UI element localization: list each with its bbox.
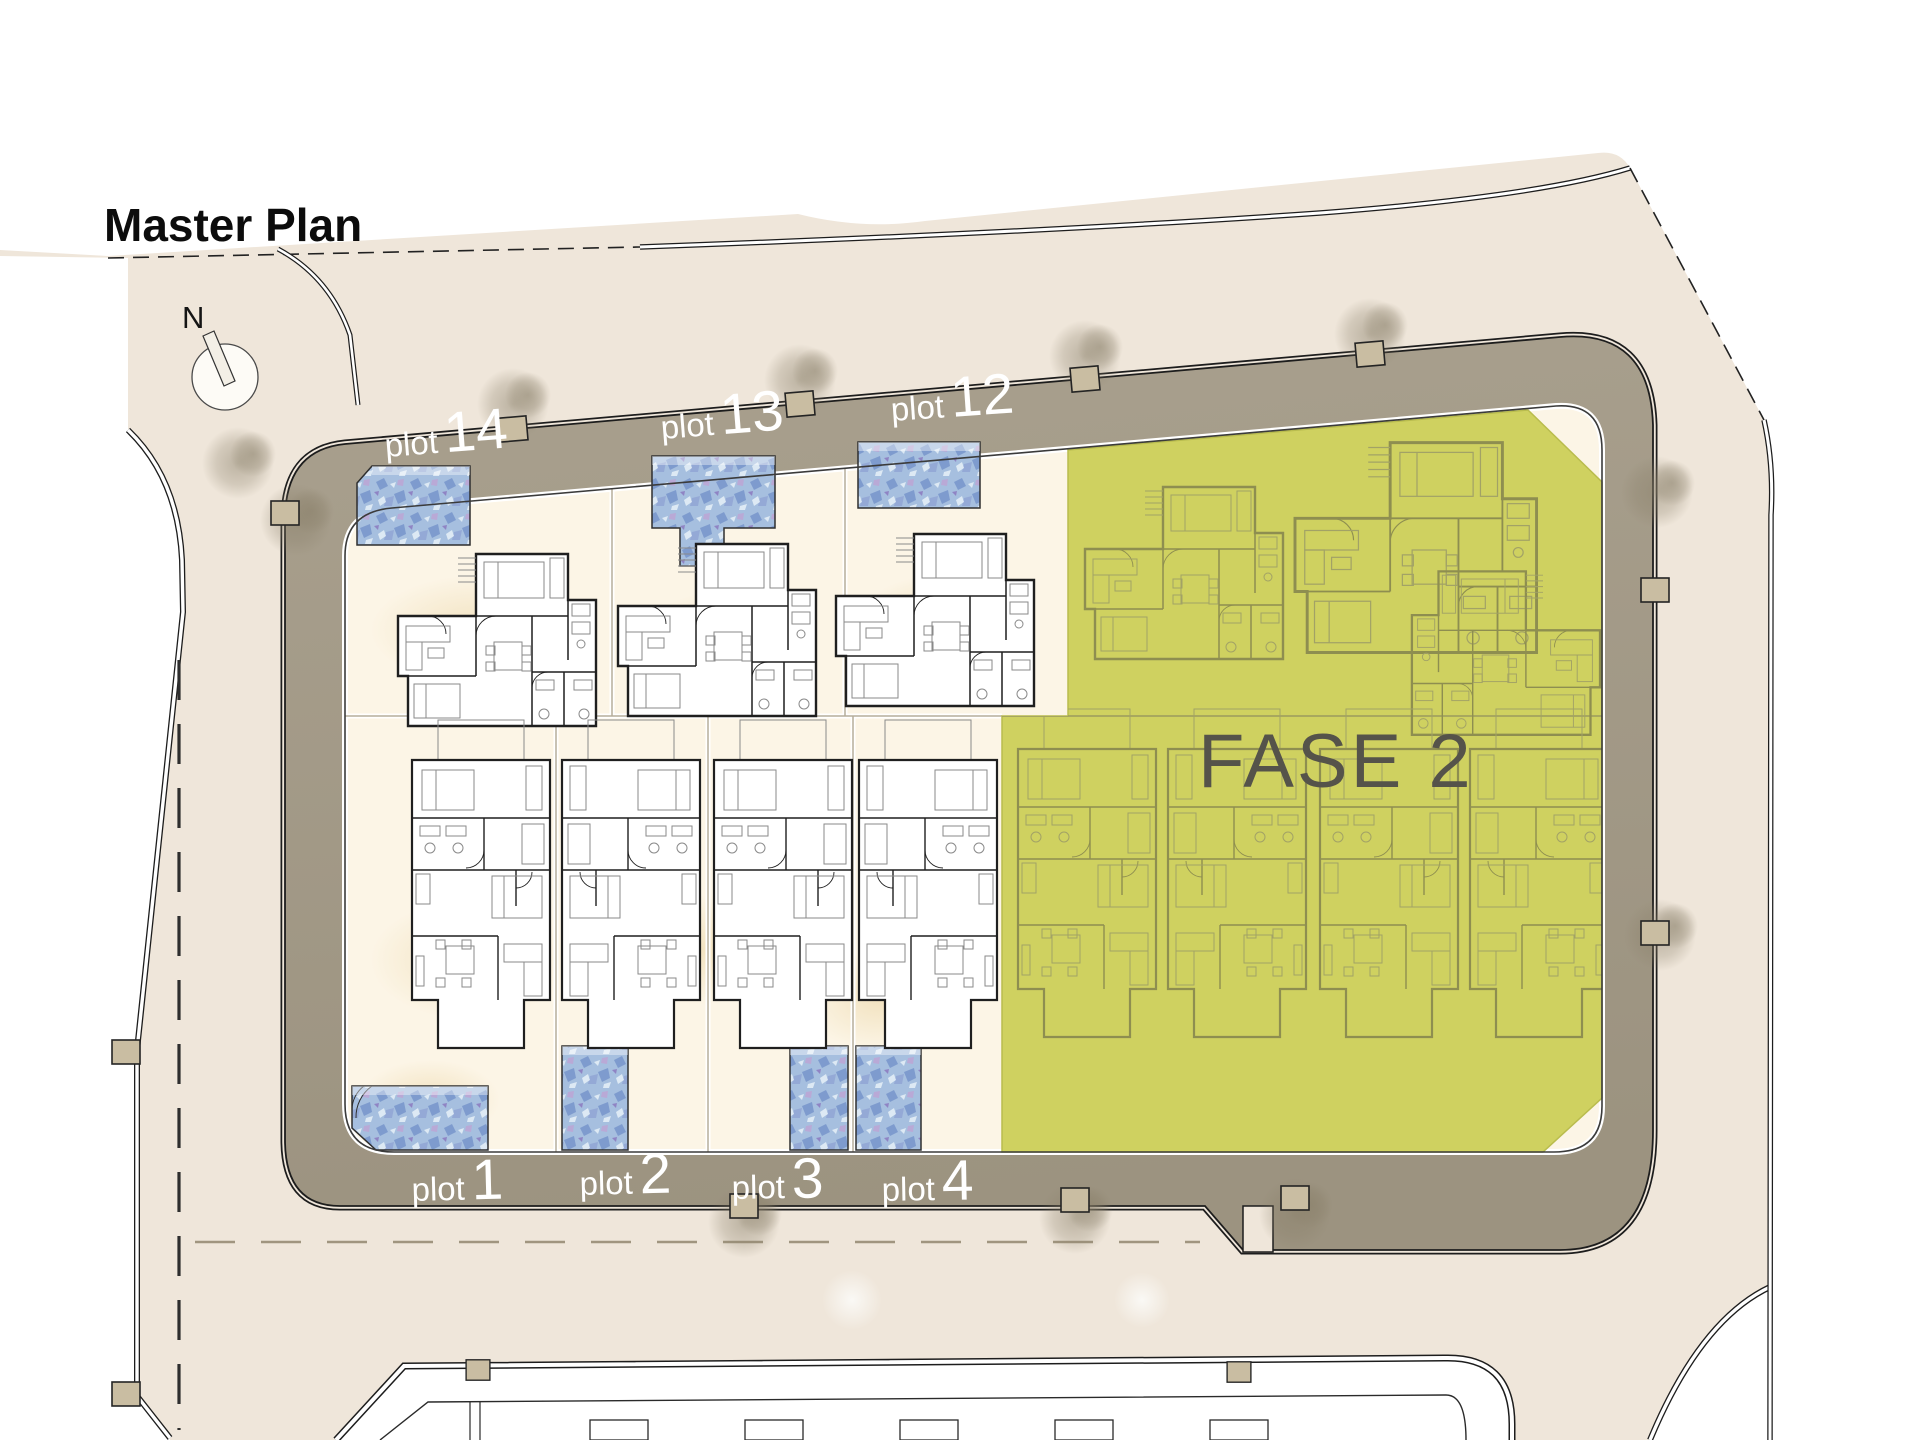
phase1-floorplans [398, 534, 1034, 1048]
fase2-zone [1002, 410, 1608, 1152]
pool-plot-12 [858, 442, 980, 508]
pool-plot-1 [352, 1086, 488, 1150]
site-plan-svg [0, 0, 1920, 1440]
south-parcel [336, 1358, 1512, 1440]
pool-plot-3 [790, 1046, 848, 1150]
pool-plot-4 [856, 1046, 921, 1150]
pool-plot-2 [562, 1046, 628, 1150]
master-plan-drawing: Master Plan N FASE 2 plot14 plot13 plot1… [0, 0, 1920, 1440]
